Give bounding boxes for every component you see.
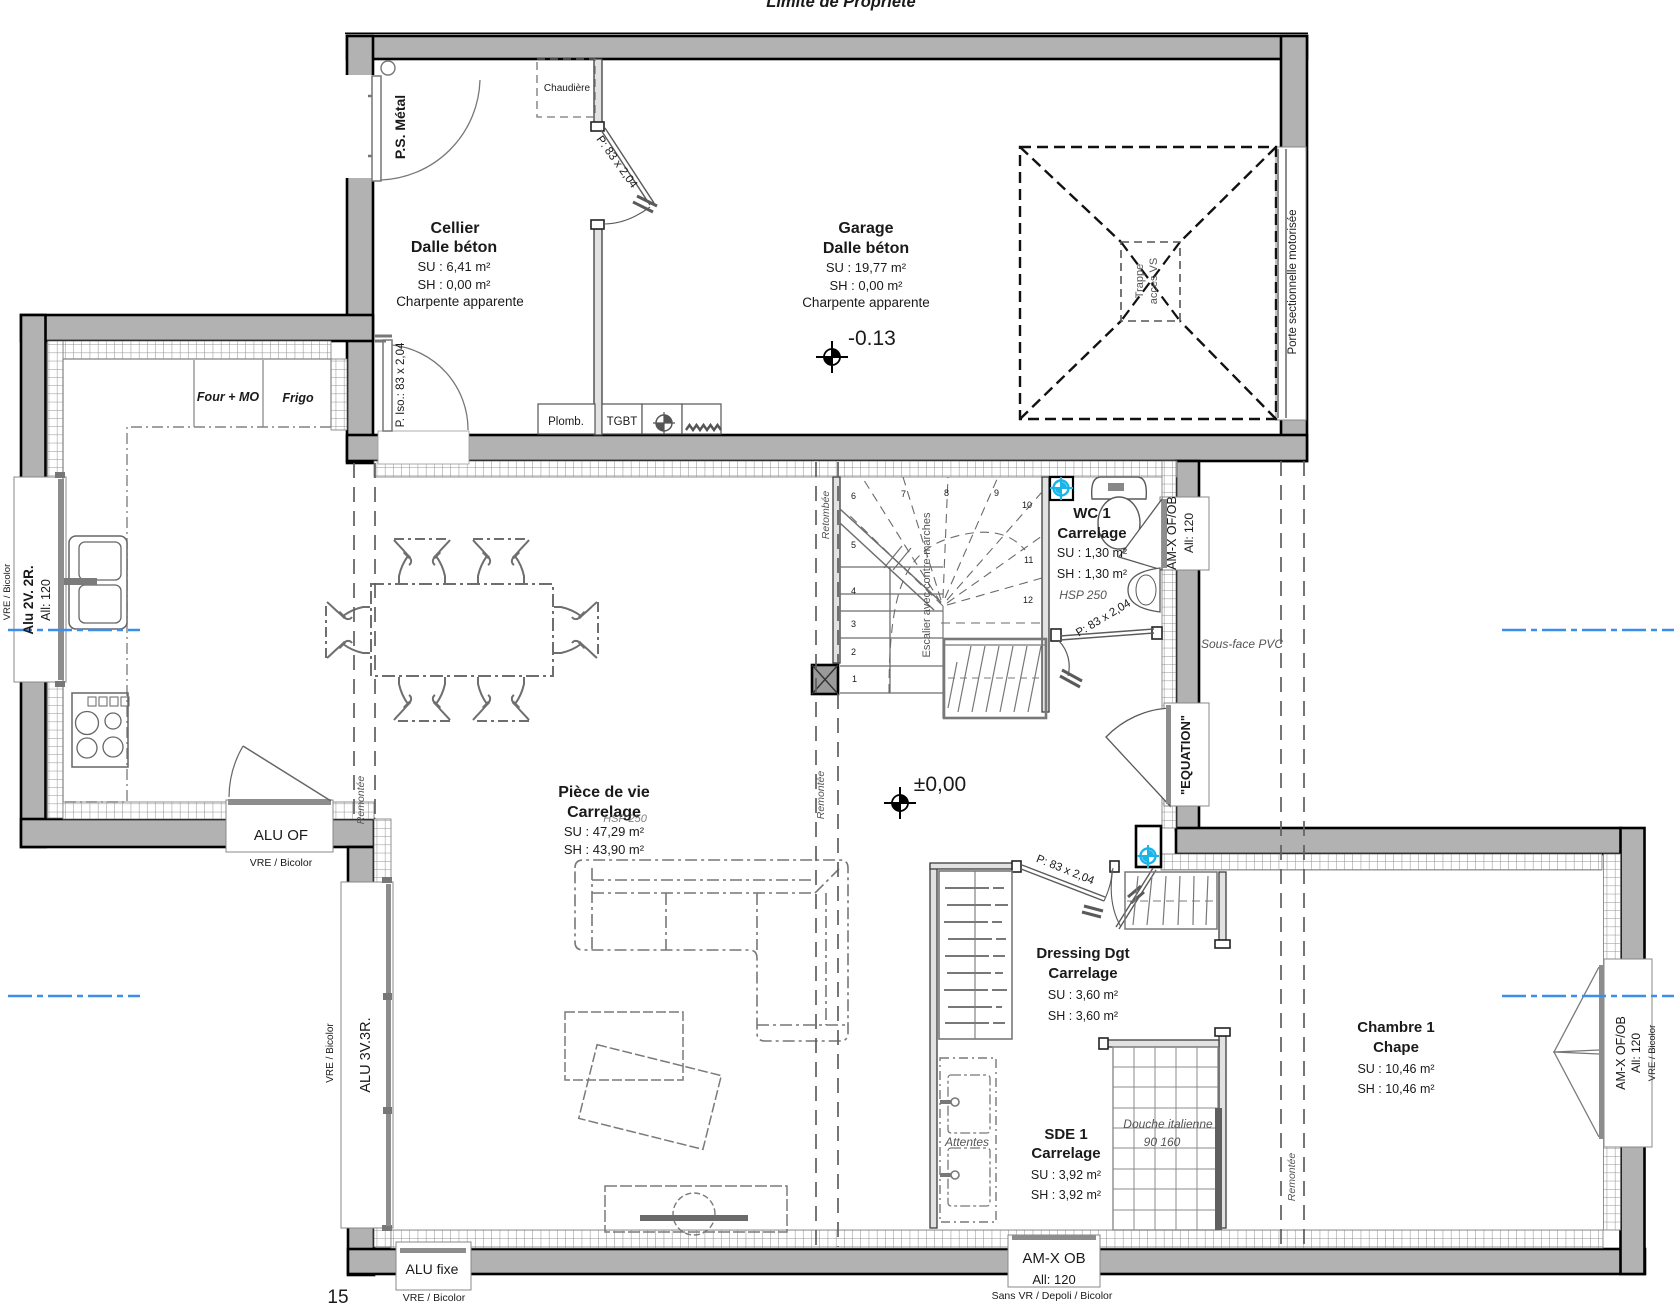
svg-text:TGBT: TGBT bbox=[607, 416, 638, 428]
svg-text:Alu 2V. 2R.: Alu 2V. 2R. bbox=[21, 565, 36, 634]
svg-text:Porte sectionnelle motorisée: Porte sectionnelle motorisée bbox=[1287, 209, 1299, 354]
svg-text:Chape: Chape bbox=[1373, 1039, 1419, 1056]
svg-text:P.S. Métal: P.S. Métal bbox=[392, 95, 408, 159]
svg-text:WC 1: WC 1 bbox=[1073, 505, 1111, 522]
svg-text:SU : 3,60 m²: SU : 3,60 m² bbox=[1048, 988, 1118, 1002]
svg-text:Carrelage: Carrelage bbox=[1031, 1145, 1100, 1162]
svg-text:Dalle béton: Dalle béton bbox=[411, 239, 497, 256]
svg-text:AM-X OF/OB: AM-X OF/OB bbox=[1614, 1016, 1628, 1090]
svg-text:Sous-face PVC: Sous-face PVC bbox=[1201, 637, 1283, 651]
svg-text:P. Iso.: 83 x 2,04: P. Iso.: 83 x 2,04 bbox=[395, 342, 407, 427]
svg-text:15: 15 bbox=[327, 1287, 348, 1304]
svg-text:AM-X OB: AM-X OB bbox=[1022, 1250, 1085, 1267]
svg-text:SH : 43,90 m²: SH : 43,90 m² bbox=[564, 842, 645, 857]
svg-text:Limite de Propriété: Limite de Propriété bbox=[766, 0, 915, 11]
svg-text:6: 6 bbox=[851, 491, 856, 501]
svg-text:12: 12 bbox=[1023, 595, 1033, 605]
svg-text:Carrelage: Carrelage bbox=[1048, 965, 1117, 982]
svg-text:Pièce de vie: Pièce de vie bbox=[558, 784, 650, 801]
svg-text:Douche italienne: Douche italienne bbox=[1123, 1117, 1213, 1131]
svg-text:3: 3 bbox=[851, 619, 856, 629]
svg-text:VRE / Bicolor: VRE / Bicolor bbox=[403, 1292, 466, 1304]
svg-text:Attentes: Attentes bbox=[944, 1135, 989, 1149]
svg-text:Cellier: Cellier bbox=[431, 220, 480, 237]
svg-text:VRE / Bicolor: VRE / Bicolor bbox=[2, 564, 13, 621]
svg-text:Charpente apparente: Charpente apparente bbox=[396, 294, 524, 309]
svg-text:SU : 10,46 m²: SU : 10,46 m² bbox=[1357, 1062, 1434, 1076]
svg-text:Chambre 1: Chambre 1 bbox=[1357, 1019, 1435, 1036]
svg-text:5: 5 bbox=[851, 540, 856, 550]
svg-text:Frigo: Frigo bbox=[282, 391, 314, 405]
svg-text:Retombée: Retombée bbox=[820, 491, 832, 540]
svg-text:SDE 1: SDE 1 bbox=[1044, 1126, 1087, 1143]
svg-text:Dalle béton: Dalle béton bbox=[823, 240, 909, 257]
svg-text:ALU OF: ALU OF bbox=[254, 827, 308, 844]
svg-text:Remontée: Remontée bbox=[355, 776, 367, 825]
svg-text:Carrelage: Carrelage bbox=[1057, 525, 1126, 542]
svg-text:SH : 10,46 m²: SH : 10,46 m² bbox=[1357, 1082, 1434, 1096]
svg-text:7: 7 bbox=[901, 489, 906, 499]
svg-text:Trappe: Trappe bbox=[1134, 264, 1146, 298]
svg-text:HSP 250: HSP 250 bbox=[1059, 588, 1107, 602]
svg-text:All: 120: All: 120 bbox=[1182, 513, 1196, 553]
svg-text:2: 2 bbox=[851, 647, 856, 657]
svg-text:4: 4 bbox=[851, 586, 856, 596]
svg-text:-0.13: -0.13 bbox=[848, 327, 896, 350]
svg-text:HSP 250: HSP 250 bbox=[603, 813, 648, 825]
svg-text:1: 1 bbox=[852, 674, 857, 684]
svg-text:VRE / Bicolor: VRE / Bicolor bbox=[325, 1023, 336, 1083]
svg-text:±0,00: ±0,00 bbox=[914, 773, 966, 796]
svg-text:90 160: 90 160 bbox=[1144, 1135, 1181, 1149]
svg-text:ALU fixe: ALU fixe bbox=[406, 1261, 459, 1277]
svg-text:SU : 6,41 m²: SU : 6,41 m² bbox=[418, 259, 492, 274]
svg-text:All: 120: All: 120 bbox=[1629, 1033, 1643, 1073]
svg-text:VRE / Bicolor: VRE / Bicolor bbox=[250, 857, 313, 869]
svg-text:SU : 1,30 m²: SU : 1,30 m² bbox=[1057, 546, 1127, 560]
svg-text:SH : 3,60 m²: SH : 3,60 m² bbox=[1048, 1009, 1118, 1023]
svg-text:"EQUATION": "EQUATION" bbox=[1178, 715, 1193, 795]
svg-text:SU : 47,29 m²: SU : 47,29 m² bbox=[564, 824, 645, 839]
svg-text:Four + MO: Four + MO bbox=[197, 390, 259, 404]
svg-text:All: 120: All: 120 bbox=[39, 579, 53, 621]
svg-text:9: 9 bbox=[994, 488, 999, 498]
svg-text:All: 120: All: 120 bbox=[1032, 1272, 1075, 1287]
svg-text:Garage: Garage bbox=[838, 220, 893, 237]
svg-text:Remontée: Remontée bbox=[1286, 1153, 1298, 1202]
svg-text:SH : 0,00 m²: SH : 0,00 m² bbox=[418, 277, 492, 292]
svg-text:Sans VR / Depoli / Bicolor: Sans VR / Depoli / Bicolor bbox=[992, 1290, 1113, 1302]
svg-text:AM-X OF/OB: AM-X OF/OB bbox=[1165, 496, 1179, 570]
svg-text:VRE / Bicolor: VRE / Bicolor bbox=[1647, 1025, 1658, 1082]
svg-text:ALU 3V.3R.: ALU 3V.3R. bbox=[358, 1017, 374, 1092]
svg-text:Charpente apparente: Charpente apparente bbox=[802, 295, 930, 310]
svg-text:Plomb.: Plomb. bbox=[548, 416, 584, 428]
svg-text:Escalier avec contre-marches: Escalier avec contre-marches bbox=[921, 512, 933, 657]
svg-text:Chaudière: Chaudière bbox=[544, 83, 591, 94]
svg-text:11: 11 bbox=[1024, 555, 1033, 565]
svg-text:10: 10 bbox=[1022, 500, 1032, 510]
svg-text:Dressing Dgt: Dressing Dgt bbox=[1036, 945, 1129, 962]
svg-text:SH : 1,30 m²: SH : 1,30 m² bbox=[1057, 567, 1127, 581]
svg-text:SU : 3,92 m²: SU : 3,92 m² bbox=[1031, 1168, 1101, 1182]
svg-text:SH : 3,92 m²: SH : 3,92 m² bbox=[1031, 1188, 1101, 1202]
svg-text:SH : 0,00 m²: SH : 0,00 m² bbox=[830, 278, 904, 293]
svg-text:8: 8 bbox=[944, 488, 949, 498]
svg-text:Remontée: Remontée bbox=[815, 771, 827, 820]
svg-text:SU : 19,77 m²: SU : 19,77 m² bbox=[826, 260, 907, 275]
svg-text:accès VS: accès VS bbox=[1148, 258, 1160, 304]
